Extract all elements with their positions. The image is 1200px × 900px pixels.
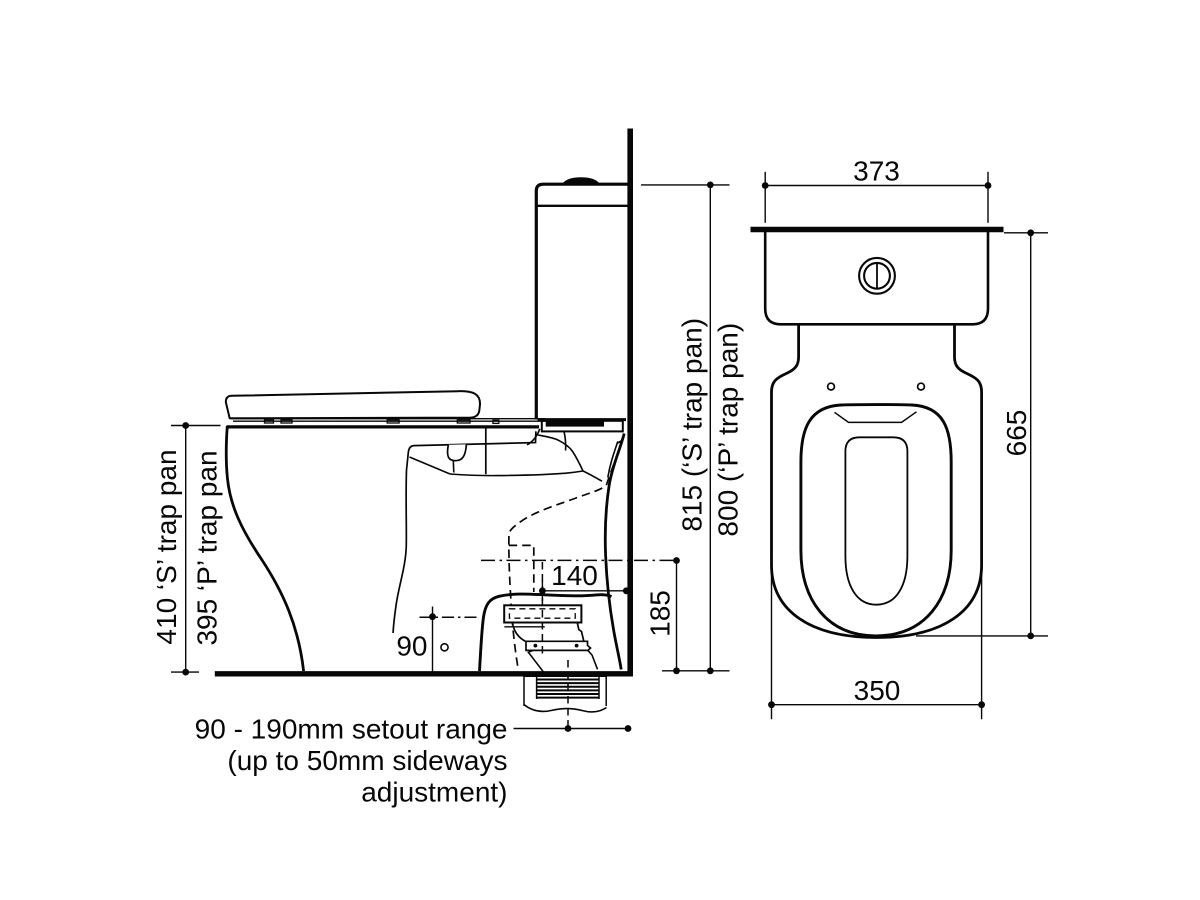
svg-text:185: 185 [645, 590, 676, 637]
svg-text:800 (‘P’ trap pan): 800 (‘P’ trap pan) [712, 323, 743, 537]
svg-text:90: 90 [396, 631, 427, 662]
svg-text:90 - 190mm setout range: 90 - 190mm setout range [195, 714, 508, 745]
svg-text:140: 140 [551, 560, 598, 591]
svg-text:adjustment): adjustment) [361, 777, 507, 808]
svg-text:(up to 50mm sideways: (up to 50mm sideways [227, 745, 507, 776]
svg-text:350: 350 [854, 675, 901, 706]
svg-text:395 ‘P’ trap pan: 395 ‘P’ trap pan [192, 450, 223, 645]
svg-text:410 ‘S’ trap pan: 410 ‘S’ trap pan [151, 449, 182, 644]
svg-text:373: 373 [853, 156, 900, 187]
svg-text:665: 665 [1001, 410, 1032, 457]
svg-text:815 (‘S’ trap pan): 815 (‘S’ trap pan) [676, 318, 707, 532]
